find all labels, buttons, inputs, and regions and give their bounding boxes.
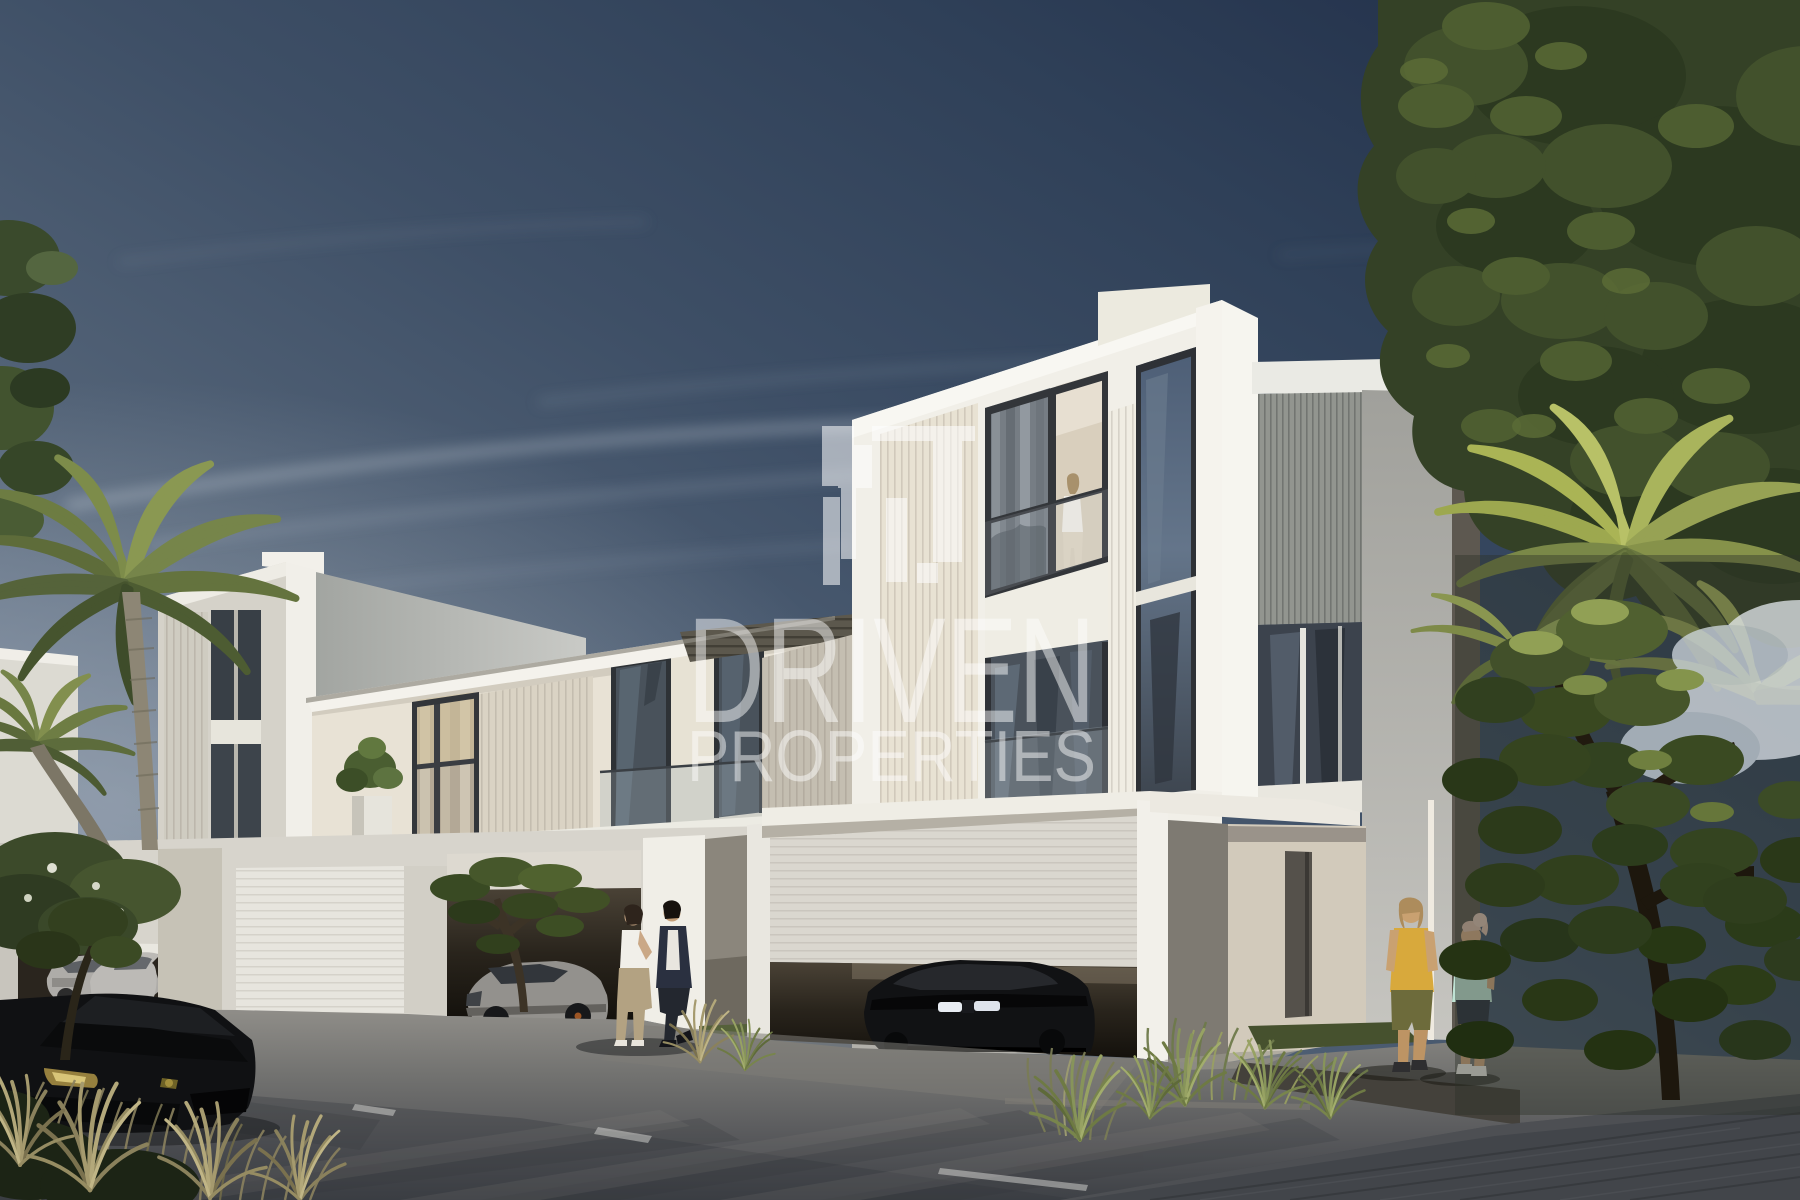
svg-text:PROPERTIES: PROPERTIES [687,717,1096,797]
